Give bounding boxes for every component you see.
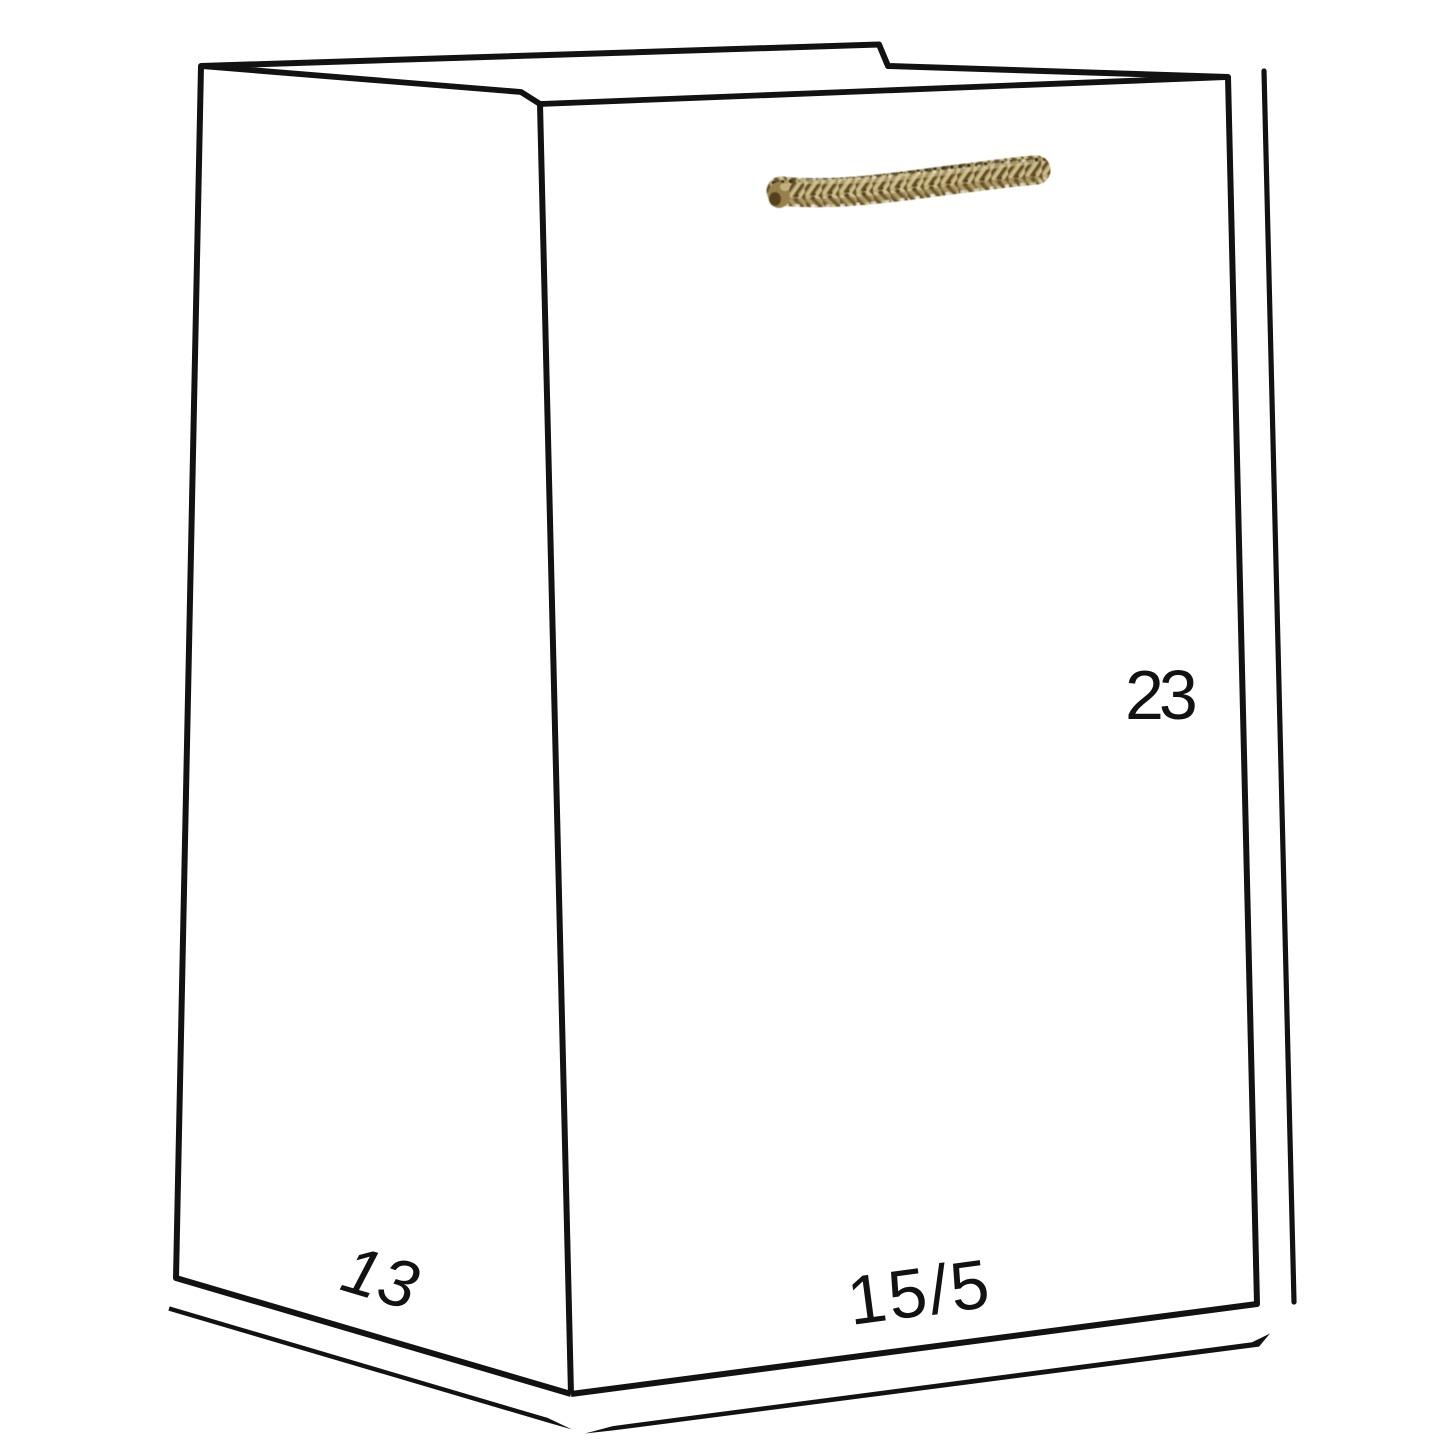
svg-text:23: 23	[1125, 656, 1195, 734]
svg-text:15/5: 15/5	[843, 1245, 996, 1340]
svg-text:13: 13	[334, 1231, 427, 1324]
